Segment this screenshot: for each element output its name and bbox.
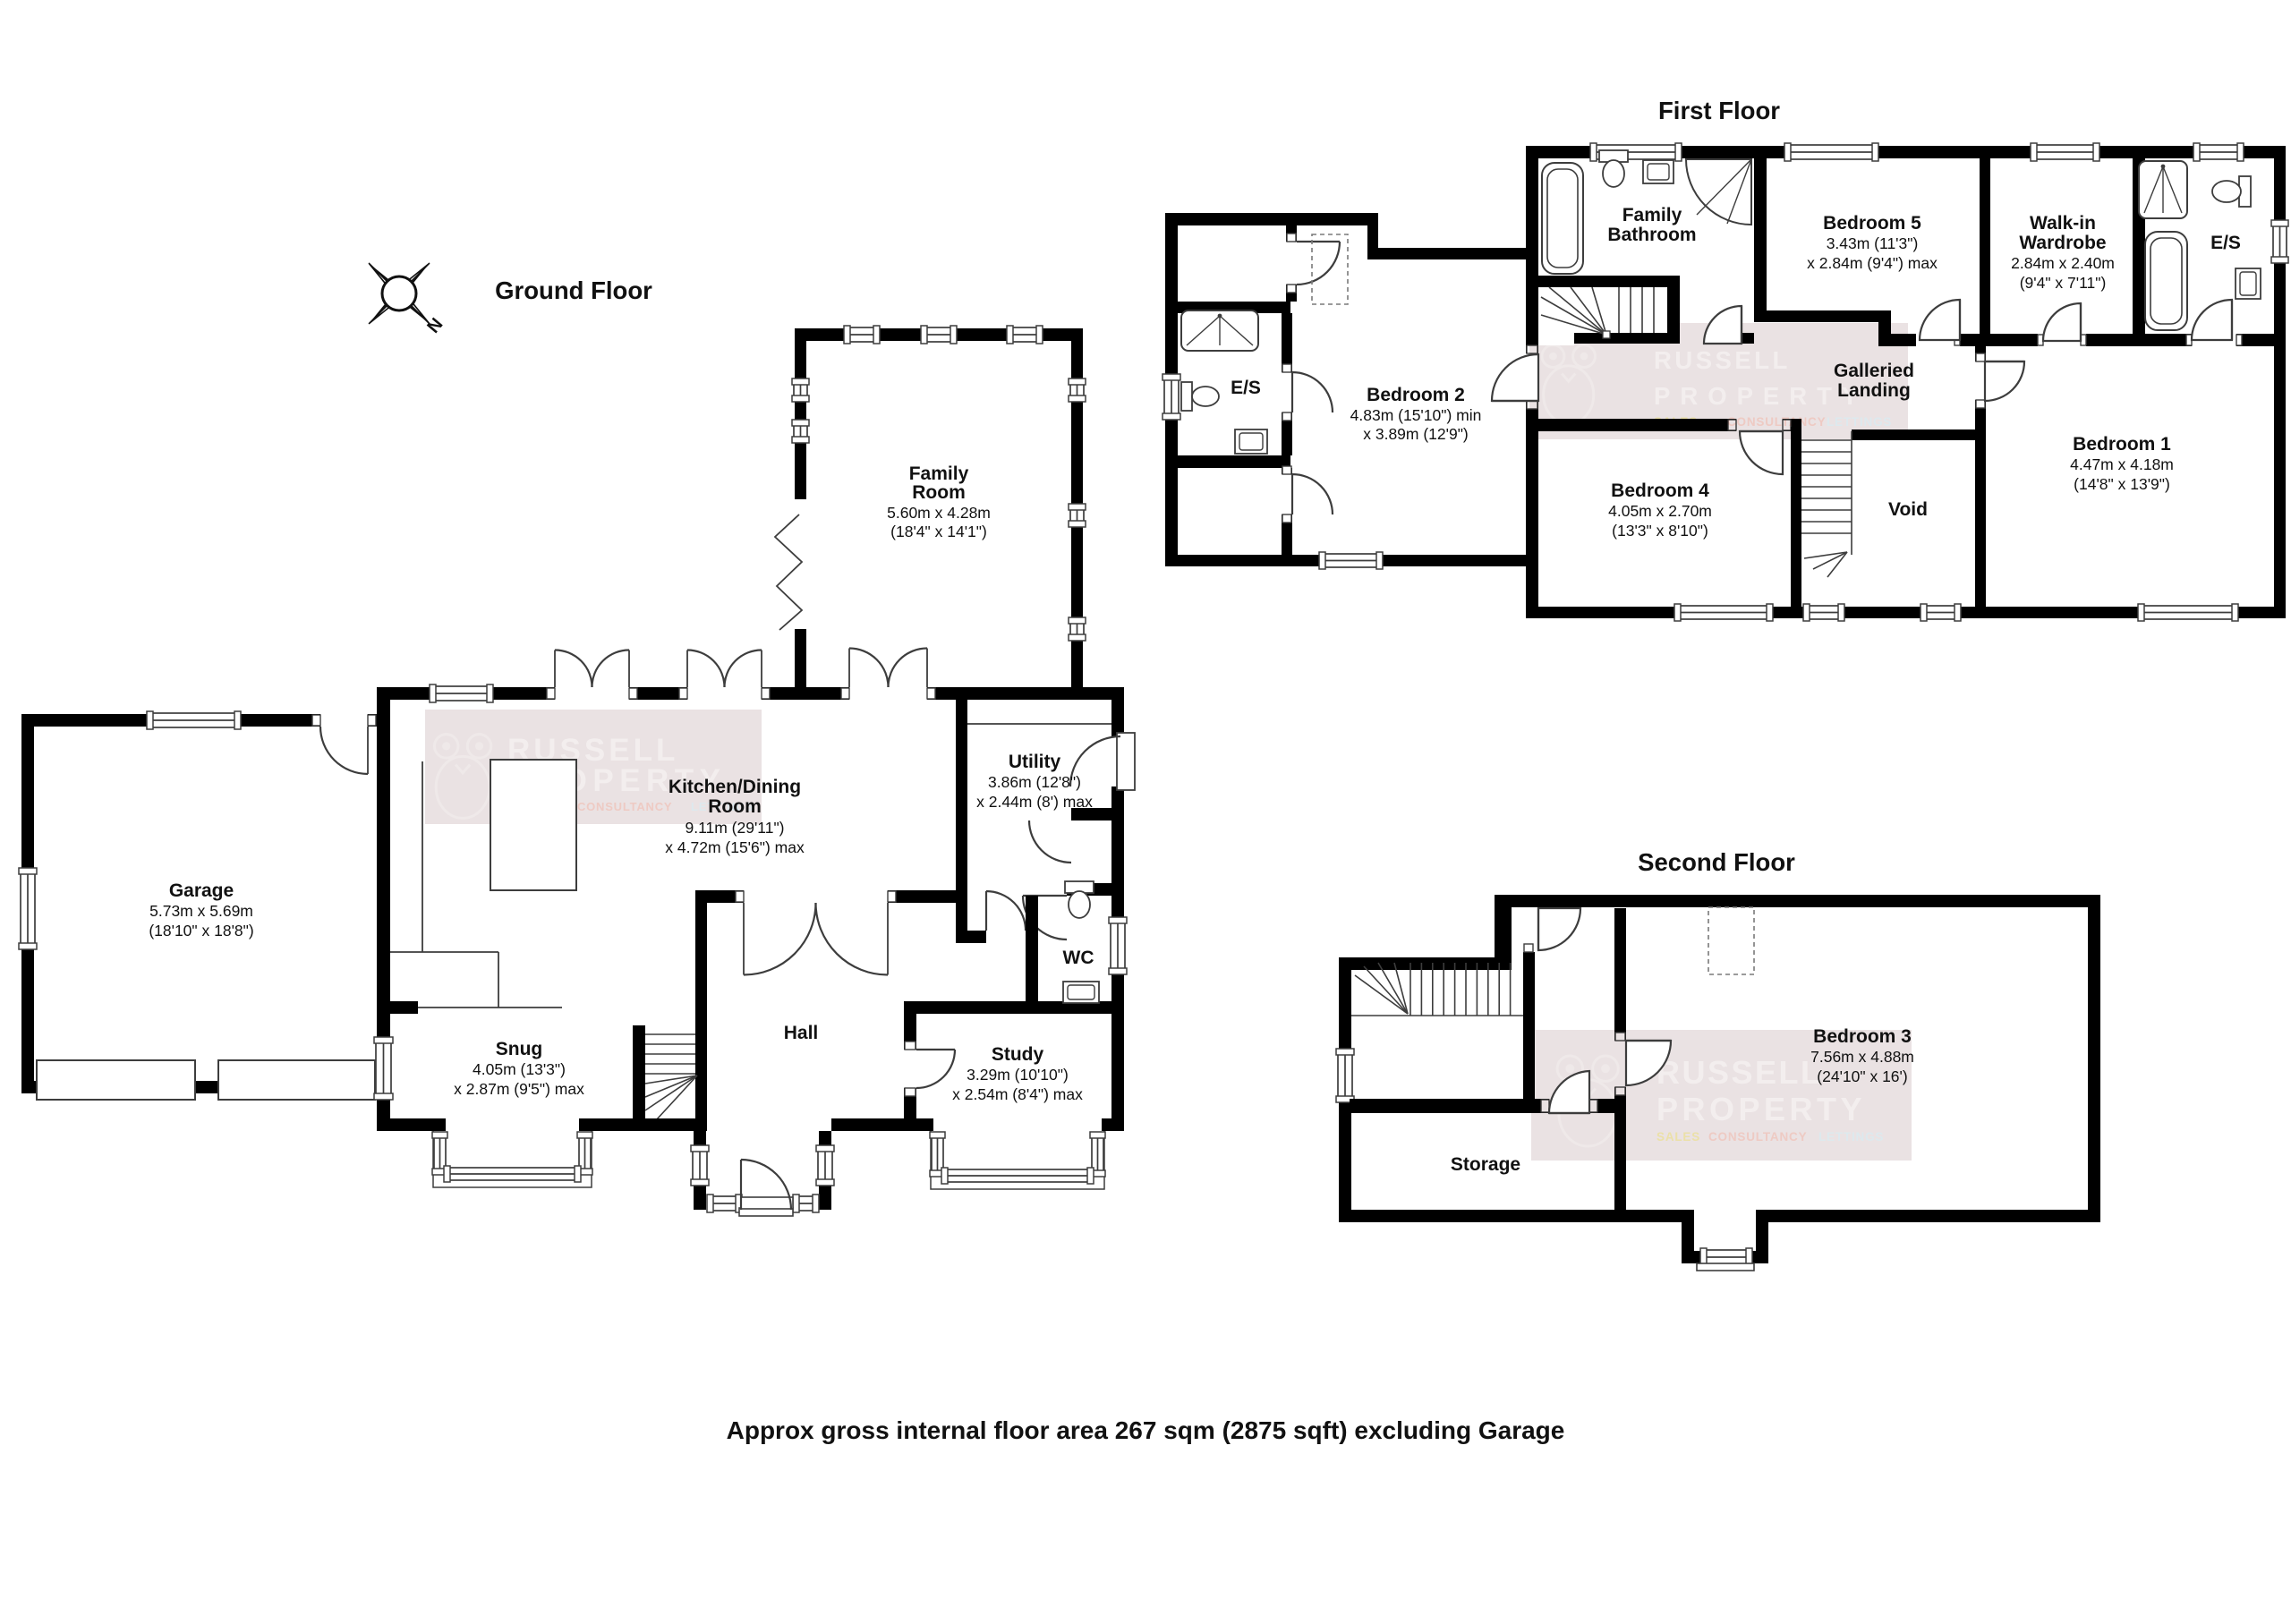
svg-text:3.86m (12'8"): 3.86m (12'8") bbox=[988, 773, 1081, 791]
svg-text:CONSULTANCY: CONSULTANCY bbox=[1727, 415, 1826, 429]
svg-text:2.84m x 2.40m: 2.84m x 2.40m bbox=[2011, 254, 2115, 272]
svg-text:CONSULTANCY: CONSULTANCY bbox=[1708, 1130, 1807, 1144]
svg-text:RUSSELL: RUSSELL bbox=[1657, 1054, 1823, 1091]
svg-text:4.47m x 4.18m: 4.47m x 4.18m bbox=[2070, 455, 2174, 473]
svg-text:x 4.72m (15'6") max: x 4.72m (15'6") max bbox=[665, 838, 805, 856]
svg-text:Garage: Garage bbox=[169, 880, 234, 901]
svg-text:First Floor: First Floor bbox=[1658, 97, 1780, 124]
svg-text:(18'10" x 18'8"): (18'10" x 18'8") bbox=[149, 922, 253, 940]
svg-text:PROPERTY: PROPERTY bbox=[1657, 1091, 1866, 1127]
svg-text:5.73m x 5.69m: 5.73m x 5.69m bbox=[149, 902, 253, 920]
svg-text:Kitchen/Dining: Kitchen/Dining bbox=[669, 777, 801, 797]
svg-text:(18'4" x 14'1"): (18'4" x 14'1") bbox=[890, 523, 987, 540]
svg-text:Snug: Snug bbox=[496, 1039, 543, 1059]
svg-text:Wardrobe: Wardrobe bbox=[2019, 233, 2106, 253]
svg-text:LETTINGS: LETTINGS bbox=[1818, 1130, 1884, 1144]
svg-text:Galleried: Galleried bbox=[1834, 361, 1914, 381]
svg-text:Landing: Landing bbox=[1837, 380, 1911, 401]
svg-text:Bathroom: Bathroom bbox=[1607, 225, 1696, 245]
svg-text:Bedroom 5: Bedroom 5 bbox=[1823, 213, 1921, 234]
svg-text:Family: Family bbox=[909, 463, 969, 484]
svg-text:E/S: E/S bbox=[1231, 378, 1261, 398]
svg-text:Room: Room bbox=[912, 482, 966, 503]
svg-text:9.11m (29'11"): 9.11m (29'11") bbox=[685, 819, 784, 837]
svg-text:Storage: Storage bbox=[1451, 1154, 1520, 1175]
svg-text:x 2.54m (8'4") max: x 2.54m (8'4") max bbox=[952, 1085, 1083, 1103]
svg-text:4.05m x 2.70m: 4.05m x 2.70m bbox=[1608, 502, 1712, 520]
svg-text:5.60m x 4.28m: 5.60m x 4.28m bbox=[887, 504, 991, 522]
svg-text:Void: Void bbox=[1888, 499, 1928, 520]
svg-text:(14'8" x 13'9"): (14'8" x 13'9") bbox=[2074, 475, 2170, 493]
svg-text:Approx gross internal floor ar: Approx gross internal floor area 267 sqm… bbox=[727, 1416, 1565, 1444]
svg-text:Bedroom 2: Bedroom 2 bbox=[1367, 385, 1465, 405]
svg-text:Ground Floor: Ground Floor bbox=[495, 276, 652, 304]
svg-text:SALES: SALES bbox=[1654, 415, 1698, 429]
svg-text:PROPERTY: PROPERTY bbox=[1654, 382, 1868, 410]
svg-text:4.83m (15'10") min: 4.83m (15'10") min bbox=[1350, 406, 1482, 424]
svg-text:Family: Family bbox=[1622, 205, 1682, 225]
svg-text:x 2.84m (9'4") max: x 2.84m (9'4") max bbox=[1807, 254, 1938, 272]
svg-text:3.29m (10'10"): 3.29m (10'10") bbox=[967, 1066, 1069, 1084]
svg-text:x 2.44m (8') max: x 2.44m (8') max bbox=[976, 793, 1093, 811]
svg-text:x 2.87m (9'5") max: x 2.87m (9'5") max bbox=[454, 1080, 584, 1098]
svg-text:Hall: Hall bbox=[784, 1023, 819, 1043]
svg-text:Room: Room bbox=[708, 796, 762, 817]
svg-text:4.05m (13'3"): 4.05m (13'3") bbox=[473, 1060, 566, 1078]
svg-text:RUSSELL: RUSSELL bbox=[1654, 346, 1791, 374]
svg-text:(9'4" x 7'11"): (9'4" x 7'11") bbox=[2020, 274, 2107, 292]
svg-text:E/S: E/S bbox=[2210, 233, 2241, 253]
svg-text:Study: Study bbox=[992, 1044, 1044, 1065]
svg-text:(13'3" x 8'10"): (13'3" x 8'10") bbox=[1612, 522, 1708, 540]
svg-text:Bedroom 4: Bedroom 4 bbox=[1611, 480, 1709, 501]
svg-text:Second Floor: Second Floor bbox=[1638, 848, 1795, 876]
svg-text:LETTINGS: LETTINGS bbox=[1827, 415, 1892, 429]
svg-text:Walk-in: Walk-in bbox=[2030, 213, 2096, 234]
svg-text:3.43m (11'3"): 3.43m (11'3") bbox=[1827, 234, 1919, 252]
svg-text:Bedroom 1: Bedroom 1 bbox=[2073, 434, 2171, 455]
svg-text:Bedroom 3: Bedroom 3 bbox=[1813, 1026, 1912, 1047]
svg-text:WC: WC bbox=[1063, 948, 1094, 968]
svg-text:CONSULTANCY: CONSULTANCY bbox=[577, 800, 672, 813]
svg-text:(24'10" x 16'): (24'10" x 16') bbox=[1817, 1067, 1907, 1085]
svg-text:SALES: SALES bbox=[1657, 1130, 1700, 1144]
svg-text:Utility: Utility bbox=[1009, 752, 1061, 772]
svg-text:x 3.89m (12'9"): x 3.89m (12'9") bbox=[1363, 425, 1469, 443]
svg-text:7.56m x 4.88m: 7.56m x 4.88m bbox=[1810, 1048, 1914, 1066]
